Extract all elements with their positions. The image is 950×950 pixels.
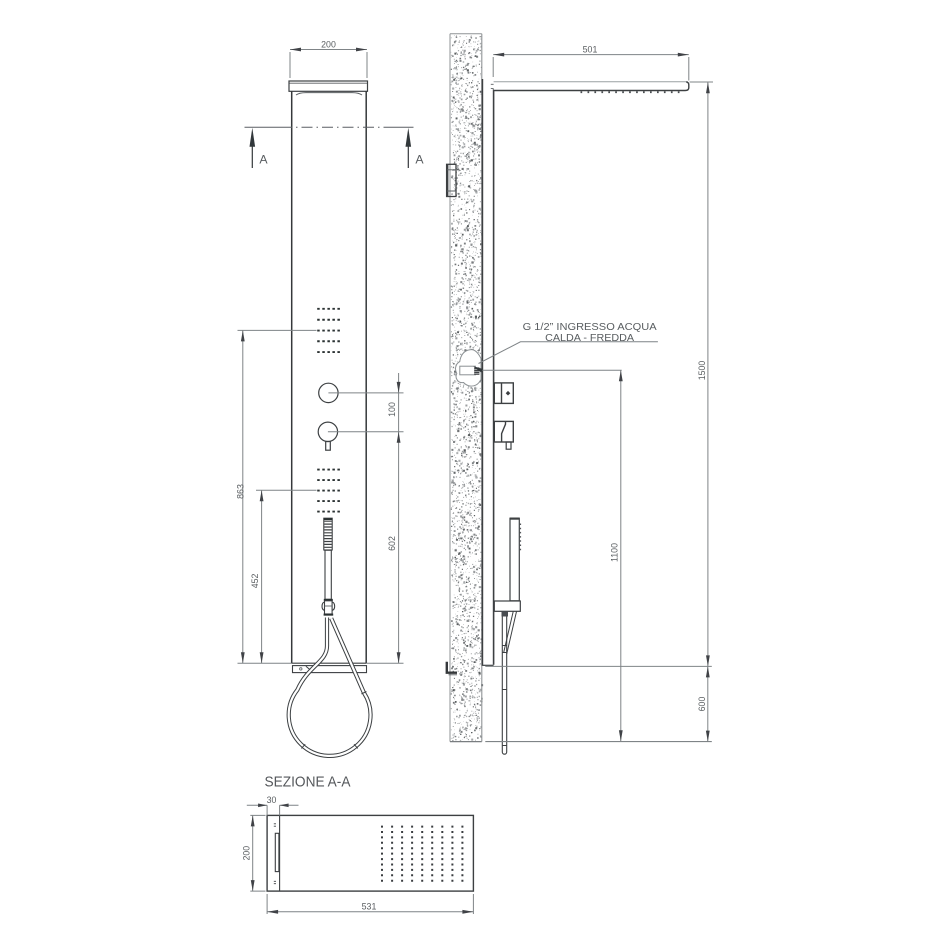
svg-text:531: 531 bbox=[362, 902, 377, 912]
svg-text:200: 200 bbox=[242, 846, 252, 861]
svg-text:602: 602 bbox=[387, 536, 397, 551]
svg-text:200: 200 bbox=[321, 40, 336, 50]
svg-text:501: 501 bbox=[583, 45, 598, 55]
svg-text:30: 30 bbox=[267, 795, 277, 805]
svg-text:A: A bbox=[415, 153, 424, 167]
svg-text:A: A bbox=[259, 153, 268, 167]
svg-text:SEZIONE A-A: SEZIONE A-A bbox=[265, 774, 351, 791]
svg-text:1500: 1500 bbox=[697, 361, 707, 381]
svg-text:600: 600 bbox=[697, 697, 707, 712]
svg-text:1100: 1100 bbox=[610, 543, 620, 562]
svg-text:863: 863 bbox=[236, 484, 246, 499]
svg-text:100: 100 bbox=[387, 402, 397, 417]
svg-text:452: 452 bbox=[250, 573, 260, 588]
